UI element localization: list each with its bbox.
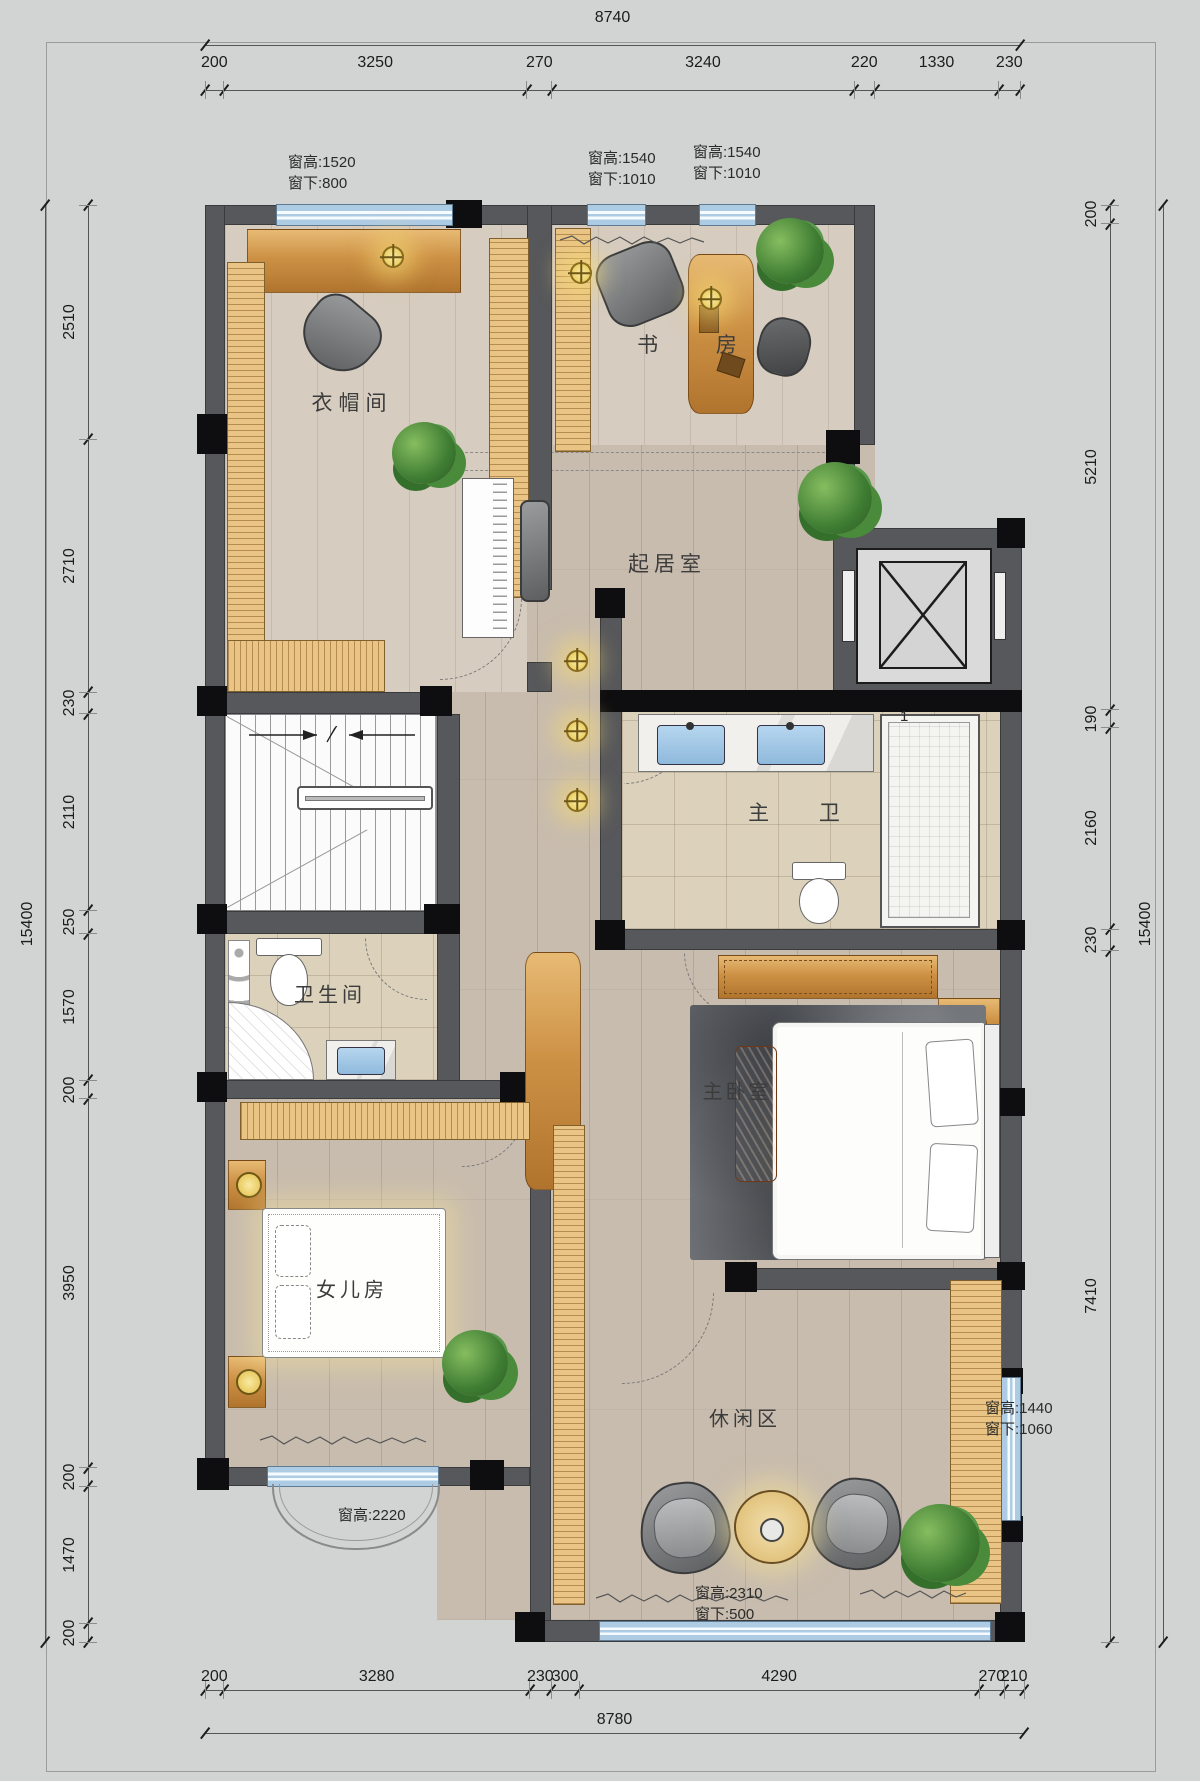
dim-ext <box>79 1080 97 1081</box>
dim-ext <box>79 1623 97 1624</box>
dim-value: 3950 <box>61 1265 79 1301</box>
dim-ext <box>1020 81 1021 99</box>
dim-ext <box>79 910 97 911</box>
dim-value: 200 <box>201 54 228 72</box>
dim-value: 3250 <box>357 54 393 72</box>
wall-band-elevator-bath <box>600 690 1022 712</box>
window-study-2 <box>700 205 755 225</box>
dim-ext <box>79 933 97 934</box>
dim-ext <box>526 81 527 99</box>
daughter-nightstand-2 <box>228 1356 266 1408</box>
dim-ext <box>854 81 855 99</box>
masterbath-toilet <box>792 862 844 924</box>
dim-line-left <box>45 205 46 1642</box>
dim-ext <box>79 1098 97 1099</box>
dim-ext <box>551 81 552 99</box>
dim-value: 4290 <box>761 1668 797 1686</box>
window-annotation-study-2: 窗高:1540窗下:1010 <box>693 142 761 184</box>
bed-pillow-1 <box>925 1038 979 1127</box>
wall-junction <box>826 430 860 464</box>
wall-cloakroom-stub <box>527 662 552 692</box>
dim-ext <box>1101 223 1119 224</box>
dim-value: 5210 <box>1083 449 1101 485</box>
hall-light-2 <box>566 720 588 742</box>
wall-junction <box>595 920 625 950</box>
cloakroom-wardrobe-left <box>227 262 265 642</box>
bed-pillow-2 <box>926 1143 979 1233</box>
floorplan-sheet: 主 卫 1 卫生间 主卧室 女儿房 <box>0 0 1200 1781</box>
bed-headboard <box>984 1024 1000 1258</box>
dim-value: 2510 <box>61 304 79 340</box>
bedroom-bed <box>772 1022 1002 1258</box>
dim-value: 250 <box>61 909 79 936</box>
room-label-cloakroom: 衣帽间 <box>312 387 393 417</box>
dim-overall: 15400 <box>19 901 37 946</box>
dim-value: 200 <box>61 1463 79 1490</box>
study-light-1 <box>570 262 592 284</box>
dim-ext <box>1101 709 1119 710</box>
leisure-wardrobe-left <box>553 1125 585 1605</box>
hall-light-1 <box>566 650 588 672</box>
tag-1: 1 <box>900 706 908 727</box>
wall-study-right <box>854 205 875 445</box>
masterbath-sink-2 <box>757 725 825 765</box>
dim-ext <box>1101 205 1119 206</box>
wall-junction <box>424 904 460 934</box>
room-label-leisure: 休闲区 <box>709 1403 781 1432</box>
stair-handrail-inner <box>305 796 425 801</box>
curtain-squiggle <box>560 234 710 246</box>
dim-ext <box>1101 950 1119 951</box>
room-label-bathroom: 卫生间 <box>294 979 366 1008</box>
daughter-pillow-2 <box>275 1285 311 1339</box>
dim-ext <box>79 713 97 714</box>
dim-value: 300 <box>552 1668 579 1686</box>
bedroom-dresser <box>718 955 938 999</box>
dim-line-top <box>205 45 1020 46</box>
wall-junction <box>725 1262 757 1292</box>
wall-stair-top <box>205 692 437 714</box>
daughter-wardrobe-top <box>240 1102 530 1140</box>
dim-ext <box>79 1642 97 1643</box>
dim-value: 270 <box>526 54 553 72</box>
wall-junction <box>197 414 227 454</box>
dim-value: 1330 <box>919 54 955 72</box>
wall-masterbath-left <box>600 596 622 950</box>
exterior-mask-top-right <box>875 220 1005 528</box>
cloakroom-ceiling-light <box>382 246 404 268</box>
dim-ext <box>579 1681 580 1699</box>
study-light-2 <box>700 288 722 310</box>
dim-ext <box>79 1467 97 1468</box>
window-cloakroom <box>277 205 452 225</box>
bathroom-sink-counter <box>326 1040 396 1080</box>
daughter-pillow-1 <box>275 1225 311 1277</box>
wall-junction <box>197 1072 227 1102</box>
wall-stair-bottom <box>205 911 437 934</box>
dim-ext <box>79 205 97 206</box>
wall-junction <box>420 686 452 716</box>
wall-junction <box>595 588 625 618</box>
door-arc-leisure <box>622 1292 714 1384</box>
wall-masterbedroom-top <box>622 929 1022 950</box>
living-bench <box>520 500 550 602</box>
dim-value: 230 <box>1083 926 1101 953</box>
dim-ext <box>79 692 97 693</box>
dim-ext <box>79 1486 97 1487</box>
dim-ext <box>1101 929 1119 930</box>
dim-line-bottom <box>205 1690 1024 1691</box>
dim-ext <box>1101 727 1119 728</box>
dim-value: 220 <box>851 54 878 72</box>
elevator-door-slot-right <box>994 572 1006 640</box>
wall-daughter-top <box>205 1080 530 1099</box>
hall-light-3 <box>566 790 588 812</box>
curtain-squiggle-daughter <box>260 1434 430 1446</box>
leisure-table <box>734 1490 810 1564</box>
dim-overall: 8780 <box>597 1711 633 1729</box>
wall-left <box>205 205 225 1486</box>
dim-line-top <box>205 90 1020 91</box>
dim-value: 230 <box>61 689 79 716</box>
dim-overall: 15400 <box>1137 901 1155 946</box>
window-study-1 <box>588 205 645 225</box>
dim-line-left <box>88 205 89 1642</box>
dim-value: 2110 <box>61 795 79 829</box>
dim-ext <box>1101 1642 1119 1643</box>
daughter-nightstand-1 <box>228 1160 266 1210</box>
curtain-squiggle-leisure-2 <box>860 1588 970 1600</box>
wall-junction <box>197 686 227 716</box>
window-annotation-closet: 窗高:1520窗下:800 <box>288 152 356 194</box>
window-leisure-bottom <box>600 1622 990 1640</box>
living-plant-right <box>798 462 872 534</box>
daughter-plant <box>442 1330 508 1396</box>
dim-value: 7410 <box>1083 1278 1101 1314</box>
masterbath-sink-1 <box>657 725 725 765</box>
wall-junction <box>470 1460 504 1490</box>
dim-ext <box>1024 1681 1025 1699</box>
stair-diagonal-2 <box>227 829 368 908</box>
living-cabinet-shelves <box>493 483 507 629</box>
masterbath-vanity <box>638 714 874 772</box>
window-annotation-daughter-bay: 窗高:2220 <box>338 1505 406 1526</box>
elevator-door-slot-left <box>842 570 855 642</box>
dim-ext <box>874 81 875 99</box>
leisure-plant <box>900 1504 980 1582</box>
dim-line-right <box>1110 205 1111 1642</box>
room-label-study: 书 房 <box>637 329 763 359</box>
wall-junction <box>995 1612 1025 1642</box>
dim-ext <box>79 439 97 440</box>
wall-junction <box>997 920 1025 950</box>
dim-line-bottom <box>205 1733 1024 1734</box>
wall-junction <box>197 904 227 934</box>
room-label-master-bath: 主 卫 <box>748 797 862 827</box>
room-label-master-bedroom: 主卧室 <box>703 1076 772 1105</box>
wall-junction <box>197 1458 229 1490</box>
bedroom-bench <box>735 1046 777 1182</box>
window-annotation-study-1: 窗高:1540窗下:1010 <box>588 148 656 190</box>
dim-value: 2710 <box>61 548 79 584</box>
door-arc-bathroom <box>365 938 427 1000</box>
living-plant-left <box>392 422 456 484</box>
dim-ext <box>223 1681 224 1699</box>
stair-handrail <box>297 786 433 810</box>
dim-ext <box>205 81 206 99</box>
window-annotation-leisure-right: 窗高:1440窗下:1060 <box>985 1398 1053 1440</box>
elevator-cab <box>856 548 992 684</box>
dim-value: 3240 <box>685 54 721 72</box>
dim-value: 3280 <box>359 1668 395 1686</box>
dim-ext <box>998 81 999 99</box>
dim-line-right <box>1163 205 1164 1642</box>
staircase <box>225 714 437 911</box>
wall-junction <box>515 1612 545 1642</box>
dim-value: 1470 <box>61 1537 79 1573</box>
study-wardrobe <box>555 228 591 452</box>
room-label-living: 起居室 <box>628 548 706 578</box>
room-label-daughter: 女儿房 <box>316 1274 388 1303</box>
bathroom-sink <box>337 1047 385 1075</box>
dim-value: 200 <box>61 1076 79 1103</box>
dim-value: 190 <box>1083 705 1101 732</box>
cloakroom-desk <box>247 229 461 293</box>
dim-value: 1570 <box>61 989 79 1025</box>
dim-overall: 8740 <box>595 9 631 27</box>
study-plant <box>756 218 824 284</box>
bathtub-texture <box>888 722 970 918</box>
dim-value: 230 <box>996 54 1023 72</box>
dim-value: 200 <box>1083 201 1101 228</box>
wall-junction <box>997 518 1025 548</box>
stair-direction-arrow <box>245 726 420 744</box>
dim-value: 200 <box>61 1619 79 1646</box>
living-cabinet <box>462 478 514 638</box>
window-annotation-leisure-bottom: 窗高:2310窗下:500 <box>695 1583 763 1625</box>
masterbath-bathtub <box>880 714 980 928</box>
elevator-x-icon <box>858 550 990 682</box>
dim-ext <box>223 81 224 99</box>
cloakroom-wardrobe-bottom <box>227 640 385 692</box>
dim-value: 2160 <box>1083 811 1101 847</box>
